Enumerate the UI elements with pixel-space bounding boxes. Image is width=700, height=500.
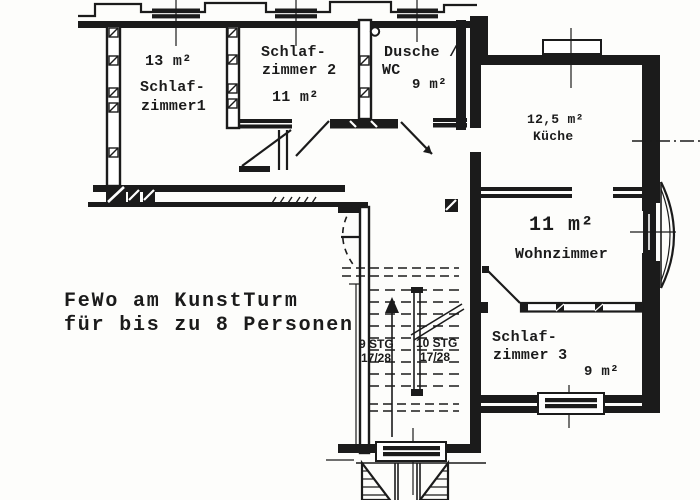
floor-plan: 13 m² Schlaf- zimmer1 Schlaf- zimmer 2 1… bbox=[0, 0, 700, 500]
window-sill-icon bbox=[152, 9, 438, 19]
door-schlafzimmer1 bbox=[239, 130, 291, 172]
drain-circle-icon bbox=[371, 27, 379, 35]
stairwell-window-icon bbox=[338, 442, 472, 461]
label-kueche-name: Küche bbox=[533, 130, 574, 144]
label-schlafzimmer2-name2: zimmer 2 bbox=[262, 63, 336, 79]
label-schlafzimmer3-name2: zimmer 3 bbox=[493, 348, 567, 364]
right-wing-north-wall bbox=[478, 40, 660, 65]
label-wohnzimmer-name: Wohnzimmer bbox=[515, 247, 608, 263]
label-schlafzimmer1-area: 13 m² bbox=[145, 54, 192, 70]
stair-cut-line bbox=[411, 304, 464, 340]
stairs-up-arrow-icon bbox=[385, 297, 399, 437]
label-dusche-wc-area: 9 m² bbox=[412, 78, 447, 93]
right-wing-west-wall bbox=[470, 16, 481, 453]
label-schlafzimmer1-name2: zimmer1 bbox=[141, 99, 206, 115]
right-wing-south-wall bbox=[470, 393, 644, 414]
plan-title-line2: für bis zu 8 Personen bbox=[64, 314, 354, 337]
label-kueche-area: 12,5 m² bbox=[527, 113, 584, 127]
label-schlafzimmer2-area: 11 m² bbox=[272, 90, 319, 106]
label-schlafzimmer2-name1: Schlaf- bbox=[261, 45, 326, 61]
label-stairs-right-ratio: 17/28 bbox=[420, 351, 450, 363]
entrance-steps bbox=[362, 463, 448, 500]
label-stairs-left-ratio: 17/28 bbox=[361, 352, 391, 364]
door-dusche-wc bbox=[401, 122, 432, 154]
label-schlafzimmer1-name1: Schlaf- bbox=[140, 80, 205, 96]
door-schlafzimmer2 bbox=[296, 121, 329, 156]
label-stairs-left-steps: 9 STG bbox=[359, 338, 394, 350]
door-schlafzimmer3 bbox=[487, 270, 520, 303]
label-dusche-wc-name1: Dusche / bbox=[384, 45, 458, 61]
label-dusche-wc-name2: WC bbox=[382, 63, 401, 79]
label-schlafzimmer3-name1: Schlaf- bbox=[492, 330, 557, 346]
label-stairs-right-steps: 10 STG bbox=[416, 337, 457, 349]
plan-title-line1: FeWo am KunstTurm bbox=[64, 290, 299, 313]
label-wohnzimmer-area: 11 m² bbox=[529, 215, 594, 236]
label-schlafzimmer3-area: 9 m² bbox=[584, 365, 619, 380]
